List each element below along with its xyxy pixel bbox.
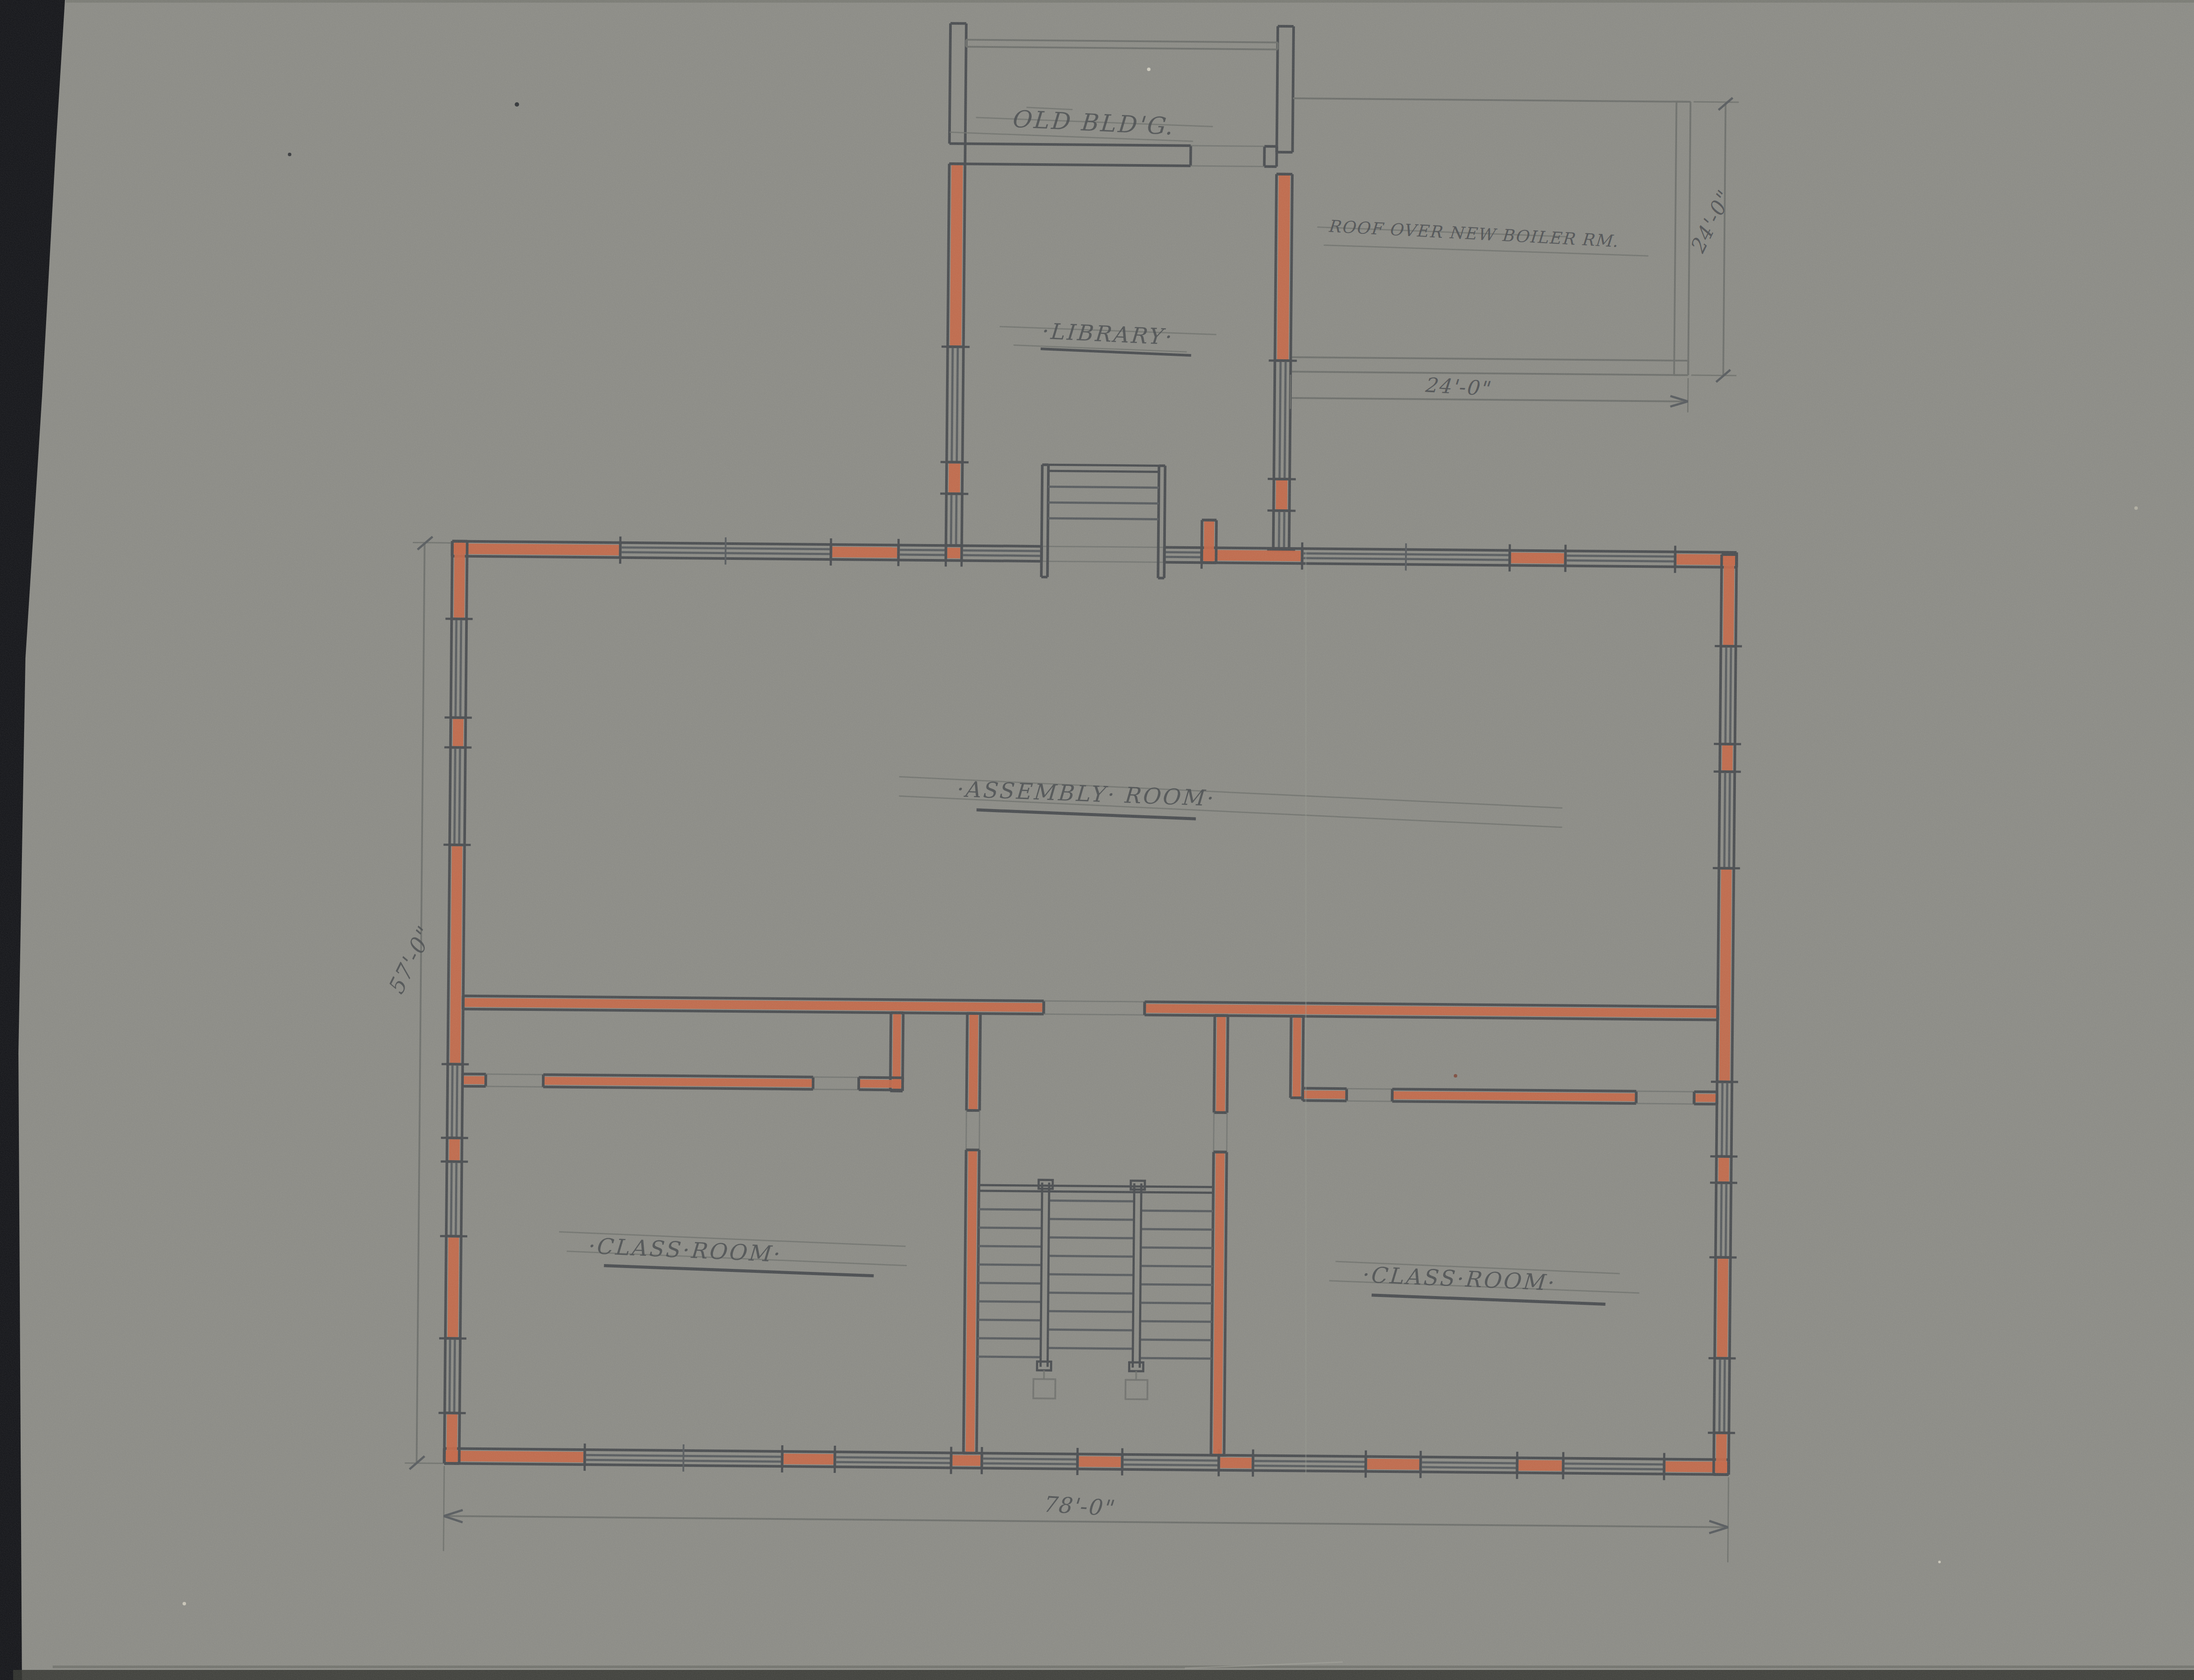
- scanned-floor-plan-sheet: OLD BLD'G. ·LIBRARY· ROOF OVER NEW BOILE…: [0, 0, 2194, 1680]
- floor-plan-drawing: OLD BLD'G. ·LIBRARY· ROOF OVER NEW BOILE…: [0, 0, 2194, 1680]
- paper-grain: [0, 0, 2194, 1680]
